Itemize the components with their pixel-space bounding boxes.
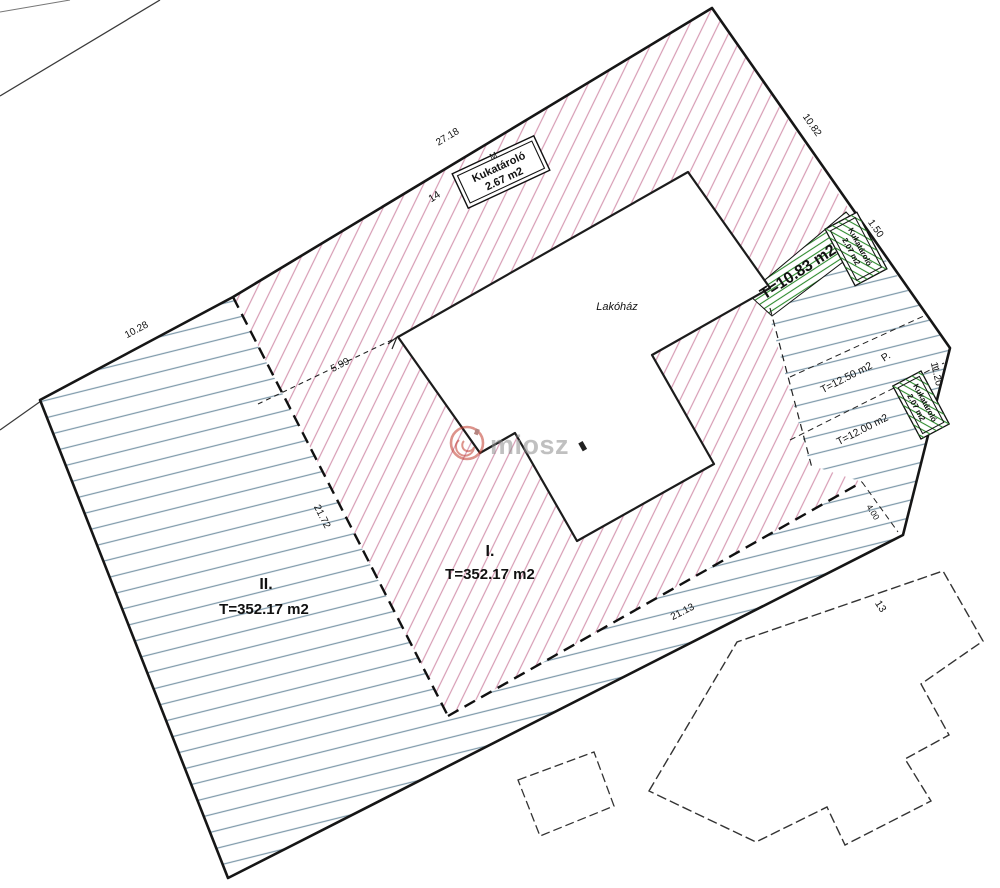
site-plan-page: Lakóház Kukatároló 2.67 m2 M Kukatároló …: [0, 0, 1000, 888]
site-plan-svg: Lakóház Kukatároló 2.67 m2 M Kukatároló …: [0, 0, 1000, 888]
road-edge-line: [0, 0, 160, 96]
dim-top-edge: 27.18: [434, 126, 461, 149]
building-label: Lakóház: [596, 301, 638, 313]
dim-upper-left-edge: 10.28: [123, 319, 151, 341]
zone1-roman-label: I.: [486, 543, 495, 560]
boundary-extension-line: [0, 401, 41, 430]
watermark-text: miosz: [490, 430, 569, 460]
zone1-area-label: T=352.17 m2: [445, 566, 535, 583]
dim-upper-right-edge: 10.82: [800, 112, 824, 139]
road-edge-line-2: [0, 0, 70, 12]
zone2-area-label: T=352.17 m2: [219, 601, 309, 618]
outbuilding-small: [518, 752, 614, 836]
zone2-roman-label: II.: [259, 576, 272, 593]
